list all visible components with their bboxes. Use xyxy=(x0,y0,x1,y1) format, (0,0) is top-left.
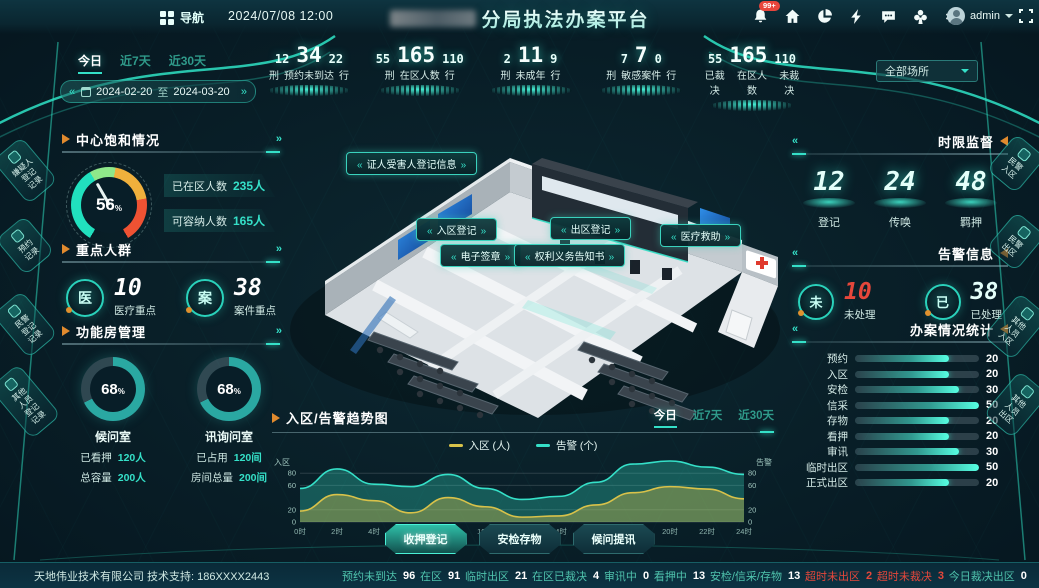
stat-pedestal-glow xyxy=(268,85,350,96)
action-button[interactable]: 安检存物 xyxy=(479,524,561,554)
time-range-tab[interactable]: 今日 xyxy=(78,52,102,74)
room-item: 68%讯询问室已占用120间房间总量200间 xyxy=(178,357,280,485)
time-limit-value: 24 xyxy=(869,169,931,195)
stat-left-label: 刑 xyxy=(501,67,511,82)
panel-func-rooms-title: 功能房管理 xyxy=(76,322,146,341)
chevron-left-icon: « xyxy=(792,135,796,147)
stat-left-value: 12 xyxy=(275,53,289,65)
time-limit-glow xyxy=(803,198,855,208)
time-limit-row: 12登记24传唤48羁押 xyxy=(792,169,1008,230)
room-donut-chart: 68% xyxy=(197,357,261,421)
alert-item: 未10未处理 xyxy=(798,281,876,322)
time-limit-value: 12 xyxy=(798,169,860,195)
svg-text:2时: 2时 xyxy=(331,526,343,536)
footer-stat-value: 2 xyxy=(866,570,872,582)
gauge-unit: % xyxy=(115,204,122,213)
person-icon xyxy=(6,304,21,319)
saturation-stat: 可容纳人数165人 xyxy=(164,209,275,232)
person-icon xyxy=(1019,384,1034,399)
svg-text:24时: 24时 xyxy=(736,526,752,536)
home-icon[interactable] xyxy=(784,8,801,25)
alert-value: 38 xyxy=(971,281,1003,304)
trend-range-tab[interactable]: 近7天 xyxy=(693,407,722,428)
pie-icon[interactable] xyxy=(816,8,833,25)
chevron-left-icon: « xyxy=(792,323,796,335)
legend-item: 入区 (人) xyxy=(449,438,510,453)
casework-bar-row: 临时出区50 xyxy=(792,460,1008,476)
section-arrow-icon xyxy=(62,326,70,336)
alerts-row: 未10未处理已38已处理 xyxy=(792,281,1008,322)
alert-status-icon: 已 xyxy=(925,284,961,320)
bell-icon[interactable]: 99+ xyxy=(752,8,769,25)
stat-left-value: 55 xyxy=(376,53,390,65)
saturation-stat-value: 165人 xyxy=(233,212,265,229)
stat-main-value: 165 xyxy=(729,46,767,65)
stat-right-label: 行 xyxy=(666,67,676,82)
footer-stat-label: 在区已裁决 xyxy=(532,568,587,584)
casework-bar-row: 入区20 xyxy=(792,367,1008,383)
svg-text:80: 80 xyxy=(748,469,756,478)
key-groups-row: 医10医疗重点案38案件重点 xyxy=(62,277,280,318)
key-group-item: 医10医疗重点 xyxy=(66,277,156,318)
stat-main-label: 敏感案件 xyxy=(621,67,661,82)
stat-right-value: 22 xyxy=(329,53,343,65)
casework-bar-track xyxy=(855,417,979,424)
casework-bar-value: 20 xyxy=(986,368,1008,380)
panel-trend: 入区/告警趋势图 今日近7天近30天 入区 (人)告警 (个) 入区告警0020… xyxy=(272,407,774,542)
key-group-label: 案件重点 xyxy=(234,303,276,318)
footer-stat: 超时未出区2 xyxy=(805,568,872,584)
trend-legend: 入区 (人)告警 (个) xyxy=(272,438,774,453)
alert-status-icon: 未 xyxy=(798,284,834,320)
stat-pedestal-glow xyxy=(490,85,572,96)
casework-bar-track xyxy=(855,433,979,440)
panel-saturation-title: 中心饱和情况 xyxy=(76,130,160,149)
panel-casework: « 办案情况统计 预约20入区20安检30信采50存物20看押20审讯30临时出… xyxy=(792,320,1008,491)
nav-grid-icon xyxy=(160,11,174,25)
casework-bar-fill xyxy=(855,402,979,409)
casework-bar-row: 信采50 xyxy=(792,398,1008,414)
time-range-tabs: 今日近7天近30天 xyxy=(78,52,206,74)
footer-stat-label: 超时未出区 xyxy=(805,568,860,584)
person-icon xyxy=(1019,306,1034,321)
alert-value: 10 xyxy=(844,281,876,304)
casework-bar-label: 入区 xyxy=(792,367,848,382)
stat-right-value: 110 xyxy=(774,53,796,65)
time-range-tab[interactable]: 近7天 xyxy=(120,52,151,74)
gauge-value: 56 xyxy=(96,195,115,215)
header-icons: 99+ xyxy=(752,8,961,25)
casework-bar-track xyxy=(855,355,979,362)
legend-swatch xyxy=(449,444,463,447)
stat-left-value: 55 xyxy=(708,53,722,65)
trend-title: 入区/告警趋势图 xyxy=(286,408,389,427)
key-group-value: 10 xyxy=(114,277,156,300)
room-stat-label: 已占用 xyxy=(196,450,228,465)
footer-stat: 临时出区21 xyxy=(465,568,527,584)
person-icon xyxy=(3,377,18,392)
rooms-row: 68%候问室已看押120人总容量200人68%讯询问室已占用120间房间总量20… xyxy=(62,357,280,485)
casework-bar-value: 20 xyxy=(986,477,1008,489)
saturation-gauge: 56% xyxy=(68,164,150,246)
panel-alerts-title: 告警信息 xyxy=(938,244,994,263)
svg-text:0时: 0时 xyxy=(294,526,306,536)
room-stat-label: 已看押 xyxy=(80,450,112,465)
casework-bar-row: 安检30 xyxy=(792,382,1008,398)
footer-stat: 审讯中0 xyxy=(604,568,649,584)
panel-time-limit: « 时限监督 12登记24传唤48羁押 xyxy=(792,132,1008,230)
stat-left-value: 7 xyxy=(621,53,628,65)
svg-text:0: 0 xyxy=(292,518,296,527)
stat-main-value: 11 xyxy=(518,46,543,65)
clover-icon[interactable] xyxy=(912,8,929,25)
footer-bar: 天地伟业技术有限公司 技术支持: 186XXXX2443 预约未到达96在区91… xyxy=(0,562,1039,588)
room-percent: 68 xyxy=(101,381,118,398)
casework-bar-fill xyxy=(855,355,949,362)
casework-bar-label: 看押 xyxy=(792,429,848,444)
stat-pedestal-glow xyxy=(379,85,461,96)
casework-bar-label: 临时出区 xyxy=(792,460,848,475)
room-name: 讯询问室 xyxy=(178,428,280,445)
svg-text:20: 20 xyxy=(748,505,756,514)
footer-company: 天地伟业技术有限公司 技术支持: 186XXXX2443 xyxy=(34,568,342,584)
stat-right-label: 行 xyxy=(551,67,561,82)
footer-stat-value: 4 xyxy=(593,570,599,582)
panel-key-groups: 重点人群 » 医10医疗重点案38案件重点 xyxy=(62,240,280,318)
stat-left-label: 已裁决 xyxy=(701,67,729,97)
panel-casework-title: 办案情况统计 xyxy=(910,320,994,339)
stat-main-value: 7 xyxy=(635,46,648,65)
footer-stat: 安检/信采/存物13 xyxy=(710,568,800,584)
stat-left-label: 刑 xyxy=(606,67,616,82)
date-separator: 至 xyxy=(157,84,168,100)
stat-right-value: 110 xyxy=(442,53,464,65)
room-donut-chart: 68% xyxy=(81,357,145,421)
svg-text:22时: 22时 xyxy=(699,526,715,536)
casework-bar-label: 预约 xyxy=(792,351,848,366)
footer-stat-value: 0 xyxy=(643,570,649,582)
legend-swatch xyxy=(536,444,550,447)
casework-bar-track xyxy=(855,402,979,409)
legend-label: 入区 (人) xyxy=(469,438,510,453)
trend-range-tab[interactable]: 近30天 xyxy=(738,407,774,428)
nav-label: 导航 xyxy=(180,9,204,26)
footer-stat: 在区已裁决4 xyxy=(532,568,599,584)
facility-label-pill[interactable]: 电子签章 xyxy=(440,244,521,267)
casework-bar-value: 30 xyxy=(986,446,1008,458)
room-stat-label: 总容量 xyxy=(80,470,112,485)
footer-stat-value: 96 xyxy=(403,570,415,582)
casework-bar-row: 看押20 xyxy=(792,429,1008,445)
svg-text:60: 60 xyxy=(748,481,756,490)
datetime: 2024/07/08 12:00 xyxy=(228,9,333,23)
facility-label-pill[interactable]: 权利义务告知书 xyxy=(514,244,625,267)
footer-stats: 预约未到达96在区91临时出区21在区已裁决4审讯中0看押中13安检/信采/存物… xyxy=(342,568,1027,584)
page-title: 分局执法办案平台 xyxy=(481,5,649,32)
chevron-down-icon xyxy=(961,69,969,73)
footer-stat-value: 13 xyxy=(693,570,705,582)
date-range-picker[interactable]: 2024-02-20 至 2024-03-20 xyxy=(60,80,256,103)
user-name: admin xyxy=(970,10,1000,22)
footer-stat-value: 0 xyxy=(1021,570,1027,582)
casework-bar-track xyxy=(855,448,979,455)
svg-text:20时: 20时 xyxy=(662,526,678,536)
saturation-stat-label: 可容纳人数 xyxy=(172,213,227,229)
room-stat-label: 房间总量 xyxy=(191,470,233,485)
left-edge-tab[interactable]: 民警登记记录 xyxy=(0,290,58,358)
footer-stat-value: 13 xyxy=(788,570,800,582)
key-group-icon: 医 xyxy=(66,279,104,317)
panel-func-rooms: 功能房管理 » 68%候问室已看押120人总容量200人68%讯询问室已占用12… xyxy=(62,322,280,485)
svg-text:20: 20 xyxy=(288,505,296,514)
svg-text:0: 0 xyxy=(748,518,752,527)
footer-stat-label: 预约未到达 xyxy=(342,568,397,584)
person-icon xyxy=(1016,225,1031,240)
room-item: 68%候问室已看押120人总容量200人 xyxy=(62,357,164,485)
footer-stat: 今日裁决出区0 xyxy=(949,568,1027,584)
key-group-label: 医疗重点 xyxy=(114,303,156,318)
casework-bar-label: 安检 xyxy=(792,382,848,397)
calendar-icon xyxy=(81,87,91,97)
casework-bar-track xyxy=(855,479,979,486)
room-stat-value: 200人 xyxy=(118,470,146,485)
legend-label: 告警 (个) xyxy=(556,438,597,453)
casework-bar-fill xyxy=(855,433,949,440)
casework-bar-track xyxy=(855,371,979,378)
bolt-icon[interactable] xyxy=(848,8,865,25)
facility-label-pill[interactable]: 医疗救助 xyxy=(660,224,741,247)
left-edge-tab[interactable]: 其他人员登记记录 xyxy=(0,364,61,440)
time-limit-item: 12登记 xyxy=(798,169,860,230)
room-stat-value: 120间 xyxy=(234,450,262,465)
trend-range-tabs: 今日近7天近30天 xyxy=(654,407,774,428)
stat-main-value: 34 xyxy=(296,46,321,65)
casework-bar-fill xyxy=(855,417,949,424)
footer-stat: 超时未裁决3 xyxy=(877,568,944,584)
date-from[interactable]: 2024-02-20 xyxy=(96,86,152,98)
stat-right-value: 9 xyxy=(550,53,557,65)
footer-stat-label: 今日裁决出区 xyxy=(949,568,1015,584)
panel-time-limit-title: 时限监督 xyxy=(938,132,994,151)
casework-bar-label: 正式出区 xyxy=(792,475,848,490)
person-icon xyxy=(10,229,25,244)
time-limit-label: 登记 xyxy=(798,214,860,230)
casework-bar-track xyxy=(855,386,979,393)
casework-bar-fill xyxy=(855,386,959,393)
stat-left-value: 2 xyxy=(504,53,511,65)
casework-bar-fill xyxy=(855,371,949,378)
facility-3d-view[interactable]: 证人受害人登记信息入区登记出区登记电子签章权利义务告知书医疗救助 xyxy=(280,100,780,422)
time-range-tab[interactable]: 近30天 xyxy=(169,52,206,74)
casework-bar-row: 预约20 xyxy=(792,351,1008,367)
stat-left-label: 刑 xyxy=(269,67,279,82)
room-percent: 68 xyxy=(217,381,234,398)
time-limit-item: 48羁押 xyxy=(940,169,1002,230)
casework-bar-label: 审讯 xyxy=(792,444,848,459)
stat-left-label: 刑 xyxy=(385,67,395,82)
panel-saturation: 中心饱和情况 » 56% 已在区人数235人可容纳人数165人 xyxy=(62,130,280,236)
casework-bar-label: 存物 xyxy=(792,413,848,428)
saturation-stat-value: 235人 xyxy=(233,177,265,194)
chevron-left-icon: « xyxy=(792,247,796,259)
footer-stat: 预约未到达96 xyxy=(342,568,415,584)
action-button[interactable]: 收押登记 xyxy=(385,524,467,554)
panel-alerts: « 告警信息 未10未处理已38已处理 xyxy=(792,244,1008,322)
key-group-item: 案38案件重点 xyxy=(186,277,276,318)
svg-text:告警: 告警 xyxy=(756,457,772,467)
footer-stat: 看押中13 xyxy=(654,568,705,584)
fullscreen-icon[interactable] xyxy=(1019,9,1033,23)
chevron-down-icon xyxy=(1005,14,1013,18)
key-group-value: 38 xyxy=(234,277,276,300)
time-limit-glow xyxy=(874,198,926,208)
time-limit-label: 羁押 xyxy=(940,214,1002,230)
svg-text:80: 80 xyxy=(288,469,296,478)
stat-right-value: 0 xyxy=(655,53,662,65)
room-name: 候问室 xyxy=(62,428,164,445)
scope-select[interactable]: 全部场所 xyxy=(876,60,978,82)
footer-stat-value: 3 xyxy=(938,570,944,582)
time-limit-glow xyxy=(945,198,997,208)
casework-bar-row: 正式出区20 xyxy=(792,475,1008,491)
room-stat-value: 120人 xyxy=(118,450,146,465)
facility-label-pill[interactable]: 证人受害人登记信息 xyxy=(346,152,477,175)
footer-stat: 在区91 xyxy=(420,568,460,584)
saturation-stat: 已在区人数235人 xyxy=(164,174,275,197)
top-bar: 导航 2024/07/08 12:00 分局执法办案平台 99+ xyxy=(0,0,1039,34)
alert-item: 已38已处理 xyxy=(925,281,1003,322)
casework-bar-row: 存物20 xyxy=(792,413,1008,429)
page-title-wrap: 分局执法办案平台 xyxy=(389,5,649,32)
casework-bar-row: 审讯30 xyxy=(792,444,1008,460)
legend-item: 告警 (个) xyxy=(536,438,597,453)
person-icon xyxy=(1016,147,1031,162)
room-stat-value: 200间 xyxy=(239,470,267,485)
casework-bar-fill xyxy=(855,479,949,486)
svg-text:4时: 4时 xyxy=(368,526,380,536)
action-button[interactable]: 候问提讯 xyxy=(573,524,655,554)
time-limit-item: 24传唤 xyxy=(869,169,931,230)
stat-main-label: 在区人数 xyxy=(400,67,440,82)
casework-bars: 预约20入区20安检30信采50存物20看押20审讯30临时出区50正式出区20 xyxy=(792,351,1008,491)
footer-stat-value: 91 xyxy=(448,570,460,582)
casework-bar-fill xyxy=(855,464,979,471)
svg-text:入区: 入区 xyxy=(274,458,290,467)
casework-bar-value: 50 xyxy=(986,461,1008,473)
user-menu[interactable]: admin xyxy=(947,7,1013,25)
dashboard: 导航 2024/07/08 12:00 分局执法办案平台 99+ xyxy=(0,0,1039,588)
key-group-icon: 案 xyxy=(186,279,224,317)
time-limit-label: 传唤 xyxy=(869,214,931,230)
trend-range-tab[interactable]: 今日 xyxy=(654,407,677,428)
chat-icon[interactable] xyxy=(880,8,897,25)
svg-text:60: 60 xyxy=(288,481,296,490)
footer-stat-label: 安检/信采/存物 xyxy=(710,568,782,584)
stat-main-label: 预约未到达 xyxy=(284,67,334,82)
footer-stat-label: 在区 xyxy=(420,568,442,584)
section-arrow-icon xyxy=(62,134,70,144)
facility-label-pill[interactable]: 出区登记 xyxy=(550,217,631,240)
stat-right-label: 行 xyxy=(445,67,455,82)
saturation-stat-label: 已在区人数 xyxy=(172,178,227,194)
stat-pedestal-glow xyxy=(600,85,682,96)
nav-menu-button[interactable]: 导航 xyxy=(160,9,204,26)
casework-bar-track xyxy=(855,464,979,471)
casework-bar-label: 信采 xyxy=(792,398,848,413)
facility-label-pill[interactable]: 入区登记 xyxy=(416,218,497,241)
stat-main-label: 未成年 xyxy=(516,67,546,82)
footer-stat-label: 看押中 xyxy=(654,568,687,584)
action-buttons: 收押登记安检存物候问提讯 xyxy=(385,524,655,554)
notification-badge: 99+ xyxy=(759,1,780,11)
footer-stat-value: 21 xyxy=(515,570,527,582)
stat-right-label: 未裁决 xyxy=(775,67,803,97)
section-arrow-icon xyxy=(272,413,280,423)
saturation-stats: 已在区人数235人可容纳人数165人 xyxy=(164,174,275,232)
scope-select-value: 全部场所 xyxy=(885,63,929,79)
left-edge-tab[interactable]: 预约记录 xyxy=(0,215,55,275)
stat-main-label: 在区人数 xyxy=(734,67,771,97)
footer-stat-label: 临时出区 xyxy=(465,568,509,584)
footer-stat-label: 审讯中 xyxy=(604,568,637,584)
redacted-title-prefix xyxy=(389,10,475,27)
left-edge-tab[interactable]: 嫌疑人登记记录 xyxy=(0,136,58,204)
stat-main-value: 165 xyxy=(397,46,435,65)
date-to[interactable]: 2024-03-20 xyxy=(173,86,229,98)
avatar xyxy=(947,7,965,25)
casework-bar-fill xyxy=(855,448,959,455)
stat-right-label: 行 xyxy=(339,67,349,82)
person-icon xyxy=(6,150,21,165)
footer-stat-label: 超时未裁决 xyxy=(877,568,932,584)
